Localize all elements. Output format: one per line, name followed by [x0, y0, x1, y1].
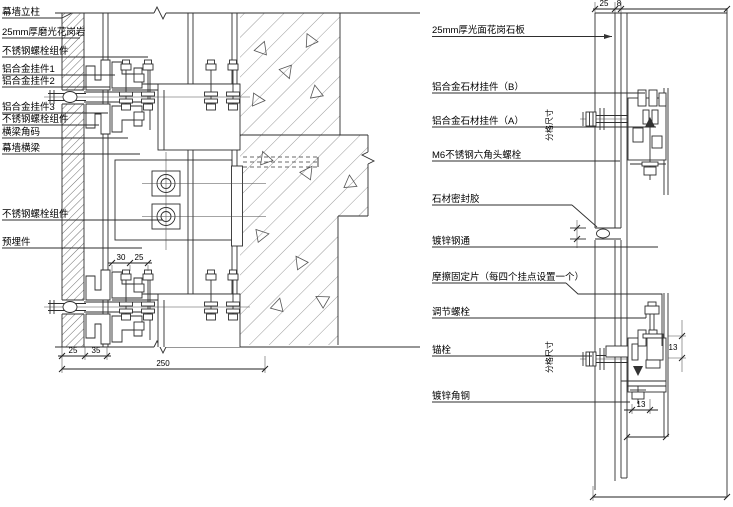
granite-panel	[62, 13, 84, 347]
label-ss-bolt-assembly-2: 不锈钢螺栓组件	[2, 113, 69, 125]
label-alu-hanger-1: 铝合金挂件1	[2, 63, 55, 75]
label-ss-bolt-assembly-3: 不锈钢螺栓组件	[2, 208, 69, 220]
label-stone-hanger-b: 铝合金石材挂件（B）	[432, 81, 524, 93]
dim-top-8: 8	[617, 0, 622, 8]
label-anchor-bolt: 锚栓	[432, 344, 452, 356]
label-alu-hanger-2: 铝合金挂件2	[2, 75, 55, 87]
dim-angle-13: 13	[637, 400, 646, 409]
dim-hanger-13: 13	[669, 343, 678, 352]
left-section-detail: 幕墙立柱 25mm厚磨光花岗岩 不锈钢螺栓组件 铝合金挂件1 铝合金挂件2 铝合…	[2, 6, 420, 373]
grid-size-notes: 分格尺寸 分格尺寸	[544, 109, 554, 373]
dim-bracket-30: 30	[117, 253, 126, 262]
grid-note-lower: 分格尺寸	[544, 341, 554, 373]
label-granite-panel-25mm: 25mm厚光面花岗石板	[432, 24, 525, 36]
dim-bottom-35: 35	[92, 346, 101, 355]
right-upper-bracket	[580, 90, 666, 180]
left-bottom-dimensions: 25 35 250	[58, 346, 268, 373]
dim-bottom-25: 25	[69, 346, 78, 355]
right-mid-dimension	[624, 434, 669, 440]
sealant-joint	[570, 220, 621, 248]
label-friction-fixing-piece: 摩擦固定片（每四个挂点设置一个）	[432, 271, 584, 283]
label-granite-25mm: 25mm厚磨光花岗岩	[2, 26, 85, 38]
concrete-structure	[237, 13, 374, 345]
label-stone-sealant: 石材密封胶	[432, 193, 480, 205]
grid-note-upper: 分格尺寸	[544, 109, 554, 141]
dim-bottom-250: 250	[156, 359, 170, 368]
right-bottom-dimension	[590, 486, 730, 501]
label-alu-hanger-3: 铝合金挂件3	[2, 101, 55, 113]
label-embedded-part: 预埋件	[2, 236, 31, 248]
label-m6-hex-bolt: M6不锈钢六角头螺栓	[432, 149, 522, 161]
right-hanger-offset-dimension: 13	[668, 320, 686, 372]
label-stone-hanger-a: 铝合金石材挂件（A）	[432, 115, 524, 127]
label-beam-angle-bracket: 横梁角码	[2, 126, 40, 138]
right-lower-bracket	[580, 302, 666, 478]
label-galvanized-steel-tube: 镀锌钢通	[432, 235, 471, 247]
right-section-detail: 25 8 13 13 25mm厚光面花岗石板	[432, 0, 730, 501]
right-top-dimension: 25 8	[592, 0, 730, 13]
label-galvanized-angle-steel: 镀锌角钢	[432, 390, 470, 402]
label-adjusting-bolt: 调节螺栓	[432, 306, 471, 318]
drawing-canvas: 幕墙立柱 25mm厚磨光花岗岩 不锈钢螺栓组件 铝合金挂件1 铝合金挂件2 铝合…	[0, 0, 733, 507]
right-angle-leg-dimension: 13	[624, 399, 658, 414]
stone-panel-lines	[595, 8, 727, 497]
dim-top-25: 25	[600, 0, 609, 8]
label-mullion: 幕墙立柱	[2, 6, 41, 18]
label-curtain-beam: 幕墙横梁	[2, 142, 41, 154]
curtain-wall-detail-drawing: 幕墙立柱 25mm厚磨光花岗岩 不锈钢螺栓组件 铝合金挂件1 铝合金挂件2 铝合…	[0, 0, 733, 507]
label-ss-bolt-assembly-1: 不锈钢螺栓组件	[2, 45, 69, 57]
dim-bracket-25: 25	[135, 253, 144, 262]
left-bracket-dimension: 30 25	[108, 253, 152, 271]
